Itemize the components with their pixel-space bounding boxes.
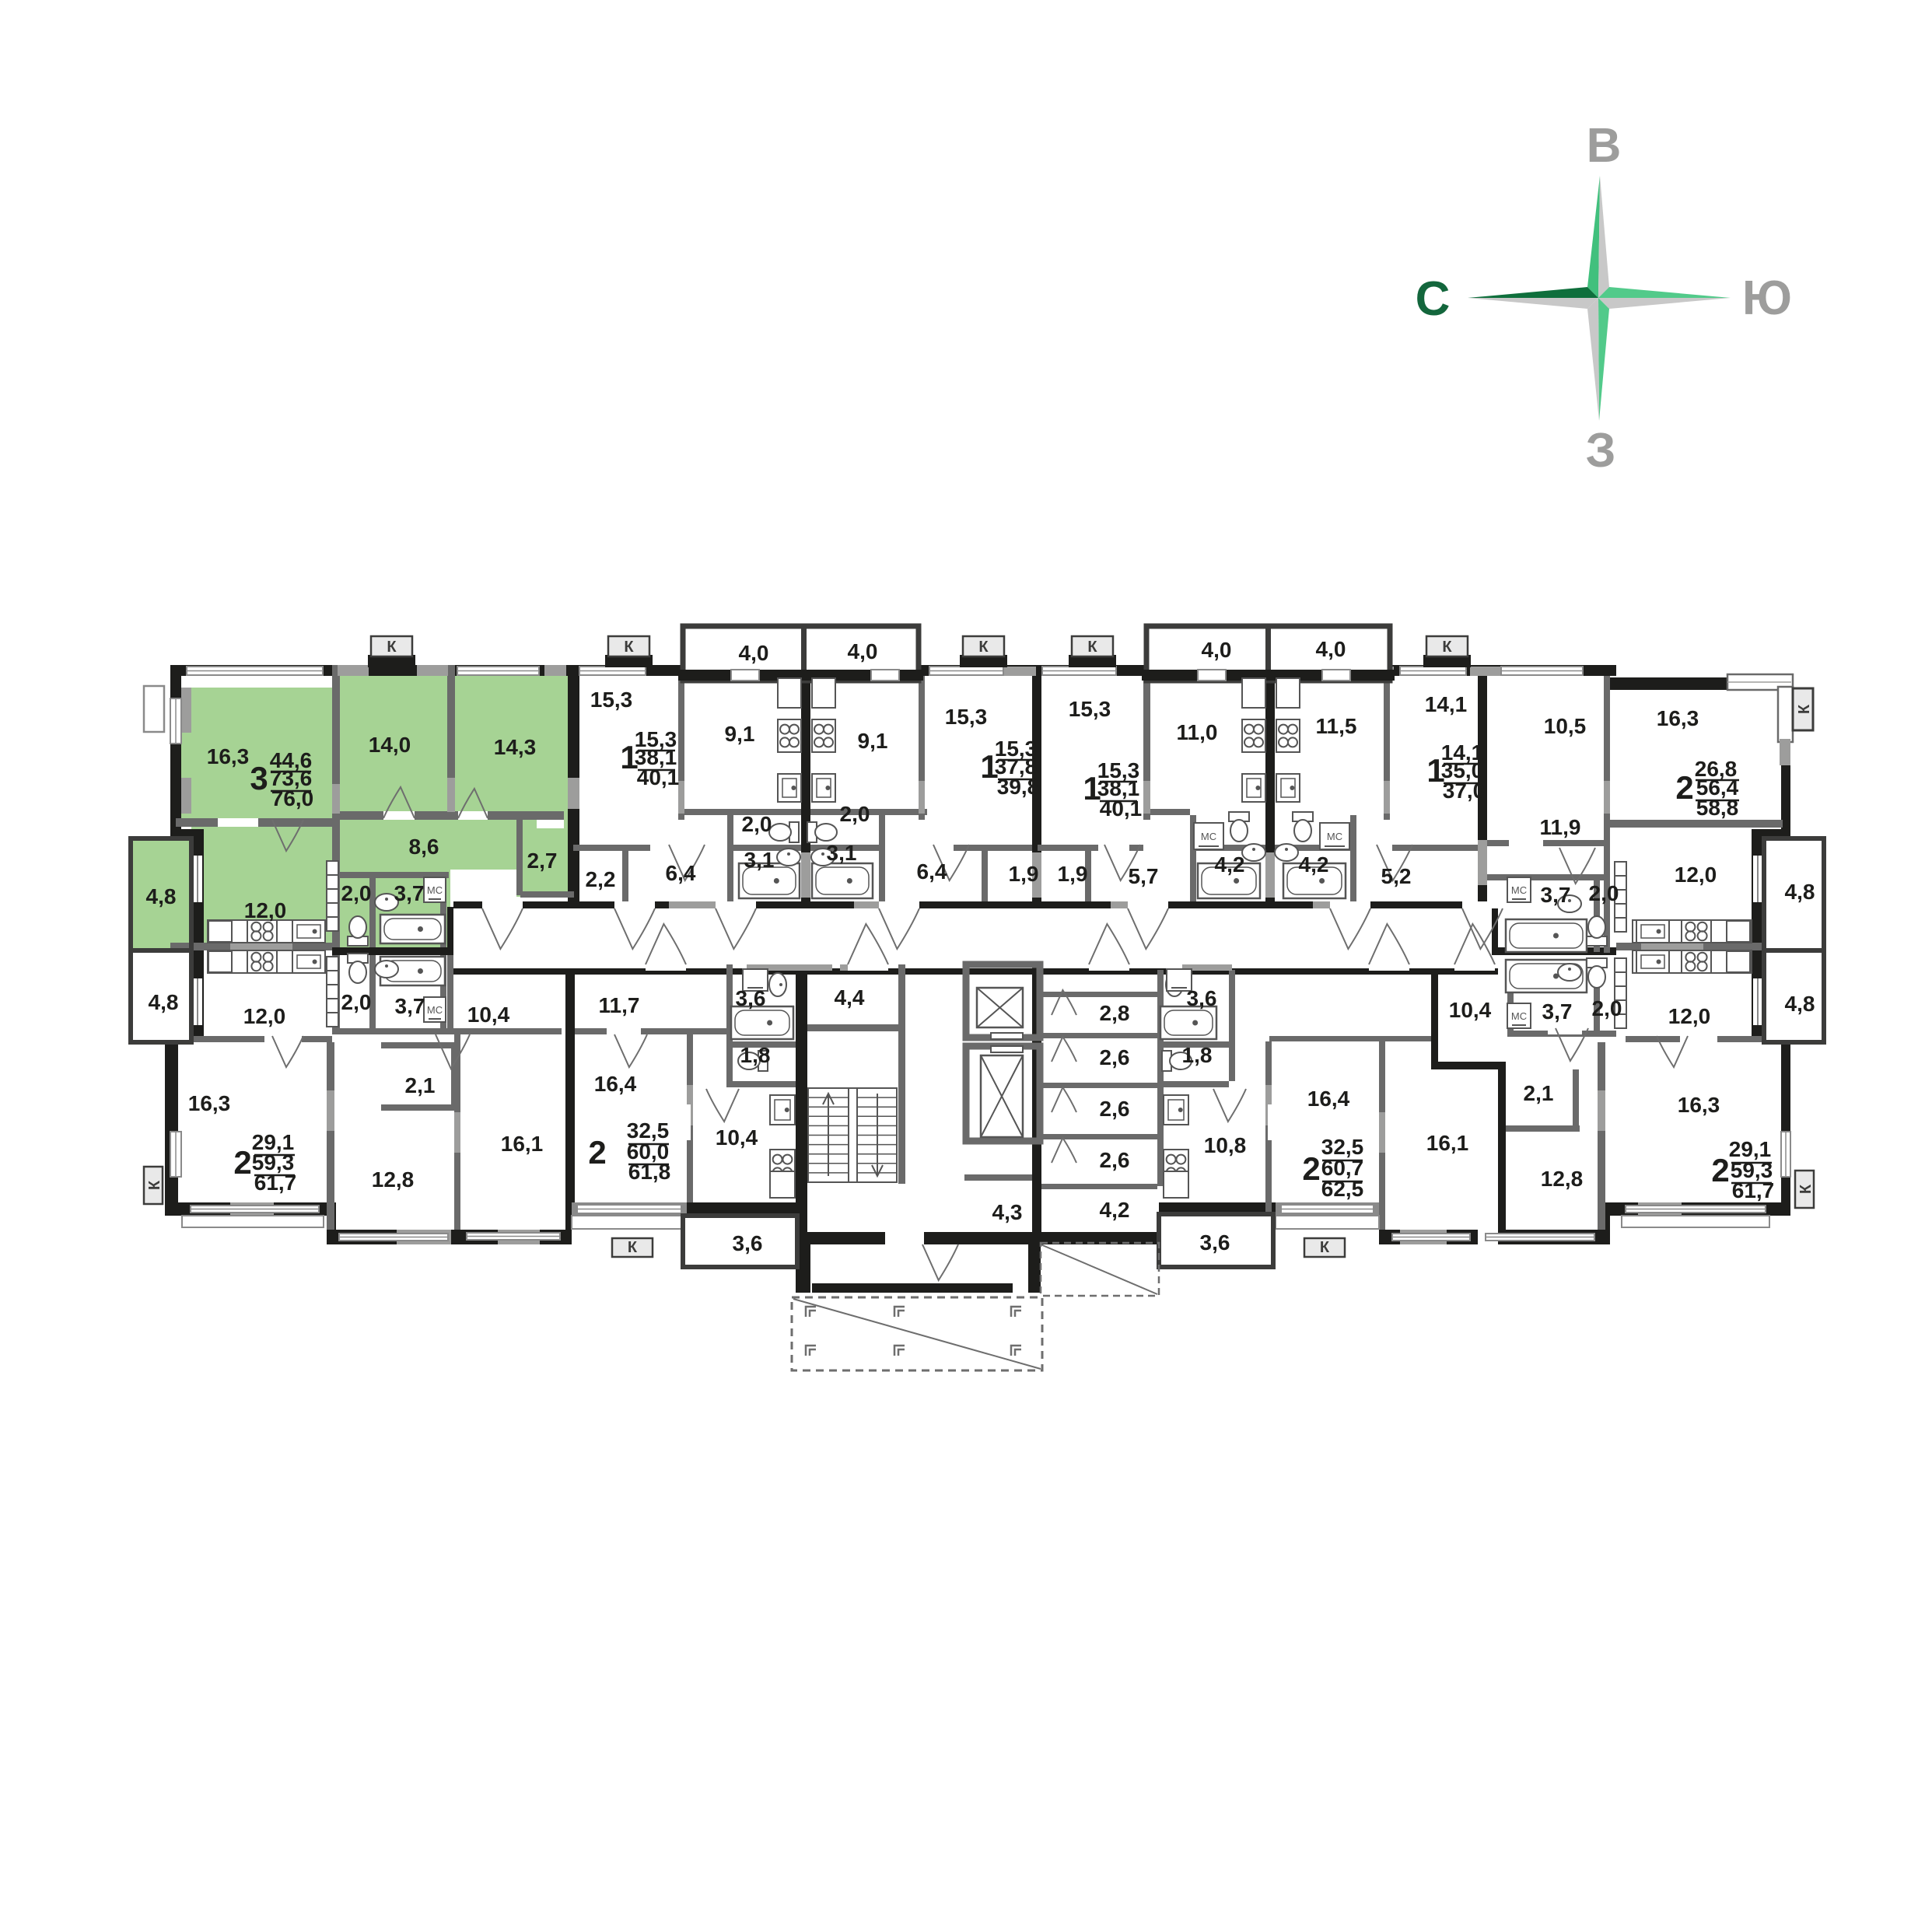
svg-text:15,3: 15,3 xyxy=(945,705,988,729)
svg-text:МС: МС xyxy=(427,1004,443,1016)
svg-text:3,6: 3,6 xyxy=(736,986,766,1010)
svg-text:К: К xyxy=(1320,1239,1330,1256)
svg-text:12,0: 12,0 xyxy=(244,898,287,922)
svg-text:К: К xyxy=(1797,1184,1815,1194)
svg-text:62,5: 62,5 xyxy=(1321,1177,1364,1201)
svg-text:9,1: 9,1 xyxy=(725,722,755,746)
svg-text:3,1: 3,1 xyxy=(827,841,857,865)
svg-text:11,5: 11,5 xyxy=(1316,714,1357,738)
svg-text:14,0: 14,0 xyxy=(369,733,411,757)
svg-text:К: К xyxy=(978,639,989,656)
svg-text:4,0: 4,0 xyxy=(1316,637,1346,661)
svg-text:16,1: 16,1 xyxy=(501,1132,544,1156)
svg-text:К: К xyxy=(146,1180,163,1190)
svg-text:15,3: 15,3 xyxy=(590,688,633,712)
svg-text:10,4: 10,4 xyxy=(716,1125,758,1150)
svg-text:4,0: 4,0 xyxy=(1202,638,1232,662)
svg-text:4,8: 4,8 xyxy=(1785,880,1815,904)
svg-text:40,1: 40,1 xyxy=(637,765,680,789)
svg-text:6,4: 6,4 xyxy=(666,861,696,885)
svg-text:16,3: 16,3 xyxy=(188,1091,231,1115)
svg-text:2: 2 xyxy=(588,1134,606,1171)
svg-text:З: З xyxy=(1586,424,1616,478)
svg-text:16,4: 16,4 xyxy=(594,1072,637,1096)
svg-text:15,3: 15,3 xyxy=(1069,697,1111,721)
svg-text:16,3: 16,3 xyxy=(1678,1093,1720,1117)
svg-text:4,0: 4,0 xyxy=(739,641,769,665)
svg-text:2,1: 2,1 xyxy=(1524,1081,1554,1105)
svg-text:10,5: 10,5 xyxy=(1544,714,1587,738)
svg-text:1,8: 1,8 xyxy=(740,1043,771,1067)
svg-text:4,2: 4,2 xyxy=(1100,1198,1130,1222)
svg-text:К: К xyxy=(1087,639,1097,656)
svg-text:37,0: 37,0 xyxy=(1443,779,1486,803)
svg-text:10,4: 10,4 xyxy=(1449,998,1492,1022)
svg-text:2,0: 2,0 xyxy=(1589,881,1619,905)
svg-text:40,1: 40,1 xyxy=(1100,796,1143,821)
svg-text:76,0: 76,0 xyxy=(271,786,314,810)
svg-text:К: К xyxy=(1442,639,1452,656)
svg-text:В: В xyxy=(1587,119,1622,173)
svg-text:61,8: 61,8 xyxy=(628,1160,671,1184)
svg-text:4,8: 4,8 xyxy=(149,990,179,1014)
svg-text:МС: МС xyxy=(1327,831,1342,842)
svg-text:14,1: 14,1 xyxy=(1425,692,1468,716)
svg-text:МС: МС xyxy=(1511,884,1527,896)
svg-text:3,1: 3,1 xyxy=(744,848,775,872)
svg-text:16,1: 16,1 xyxy=(1426,1131,1469,1155)
svg-text:14,3: 14,3 xyxy=(494,735,537,759)
svg-text:4,8: 4,8 xyxy=(146,884,177,908)
svg-text:16,3: 16,3 xyxy=(207,744,250,768)
svg-text:2,0: 2,0 xyxy=(1592,996,1622,1020)
svg-text:9,1: 9,1 xyxy=(858,729,888,753)
svg-text:61,7: 61,7 xyxy=(1732,1178,1775,1202)
svg-text:3,7: 3,7 xyxy=(1542,999,1573,1024)
svg-text:4,8: 4,8 xyxy=(1785,992,1815,1016)
svg-text:39,8: 39,8 xyxy=(997,775,1040,799)
svg-text:2: 2 xyxy=(1711,1152,1729,1188)
svg-text:МС: МС xyxy=(1201,831,1216,842)
svg-text:3,7: 3,7 xyxy=(394,881,425,905)
svg-text:3,6: 3,6 xyxy=(1200,1230,1230,1255)
svg-text:К: К xyxy=(1796,704,1813,714)
svg-text:58,8: 58,8 xyxy=(1696,796,1739,820)
svg-text:К: К xyxy=(387,639,397,656)
svg-text:12,8: 12,8 xyxy=(1541,1167,1584,1191)
svg-text:С: С xyxy=(1416,272,1451,326)
svg-text:5,2: 5,2 xyxy=(1381,864,1412,888)
svg-text:61,7: 61,7 xyxy=(254,1171,297,1195)
svg-text:2,2: 2,2 xyxy=(586,867,616,891)
svg-text:10,4: 10,4 xyxy=(467,1003,510,1027)
svg-text:16,3: 16,3 xyxy=(1657,706,1699,730)
svg-text:16,4: 16,4 xyxy=(1307,1087,1350,1111)
svg-text:К: К xyxy=(628,1239,638,1256)
svg-text:2,8: 2,8 xyxy=(1100,1001,1130,1025)
svg-text:3,6: 3,6 xyxy=(733,1231,763,1255)
svg-text:4,2: 4,2 xyxy=(1299,852,1329,877)
svg-text:МС: МС xyxy=(427,884,443,896)
svg-text:3: 3 xyxy=(250,760,268,796)
svg-text:11,9: 11,9 xyxy=(1540,815,1581,839)
svg-text:1,8: 1,8 xyxy=(1182,1043,1213,1067)
svg-text:2,0: 2,0 xyxy=(742,812,772,836)
svg-text:2,7: 2,7 xyxy=(527,849,558,873)
svg-text:2,6: 2,6 xyxy=(1100,1148,1130,1172)
svg-text:МС: МС xyxy=(1511,1010,1527,1022)
svg-text:1,9: 1,9 xyxy=(1009,862,1039,886)
svg-text:4,2: 4,2 xyxy=(1215,852,1245,877)
svg-text:12,0: 12,0 xyxy=(243,1004,286,1028)
svg-text:5,7: 5,7 xyxy=(1129,864,1159,888)
svg-text:1,9: 1,9 xyxy=(1058,862,1088,886)
svg-text:6,4: 6,4 xyxy=(917,859,947,884)
svg-text:2: 2 xyxy=(1302,1150,1320,1187)
svg-text:2,6: 2,6 xyxy=(1100,1097,1130,1121)
svg-text:4,0: 4,0 xyxy=(848,639,878,663)
svg-text:3,6: 3,6 xyxy=(1187,986,1217,1010)
svg-text:12,0: 12,0 xyxy=(1668,1004,1711,1028)
svg-text:3,7: 3,7 xyxy=(395,994,425,1018)
svg-text:2: 2 xyxy=(233,1144,251,1181)
svg-text:Ю: Ю xyxy=(1742,271,1792,325)
svg-text:12,0: 12,0 xyxy=(1675,863,1717,887)
svg-text:2,0: 2,0 xyxy=(341,990,372,1014)
svg-text:3,7: 3,7 xyxy=(1541,883,1571,907)
svg-text:11,0: 11,0 xyxy=(1177,720,1218,744)
svg-text:8,6: 8,6 xyxy=(409,835,439,859)
svg-text:К: К xyxy=(624,639,634,656)
svg-text:4,4: 4,4 xyxy=(835,985,865,1010)
svg-text:12,8: 12,8 xyxy=(372,1167,415,1192)
svg-text:2,0: 2,0 xyxy=(840,802,870,826)
svg-text:2,0: 2,0 xyxy=(341,881,372,905)
svg-text:11,7: 11,7 xyxy=(599,993,640,1017)
svg-text:10,8: 10,8 xyxy=(1204,1133,1247,1157)
svg-text:4,3: 4,3 xyxy=(992,1200,1023,1224)
svg-text:2,6: 2,6 xyxy=(1100,1045,1130,1069)
svg-text:2,1: 2,1 xyxy=(405,1073,436,1097)
svg-text:2: 2 xyxy=(1675,769,1693,806)
